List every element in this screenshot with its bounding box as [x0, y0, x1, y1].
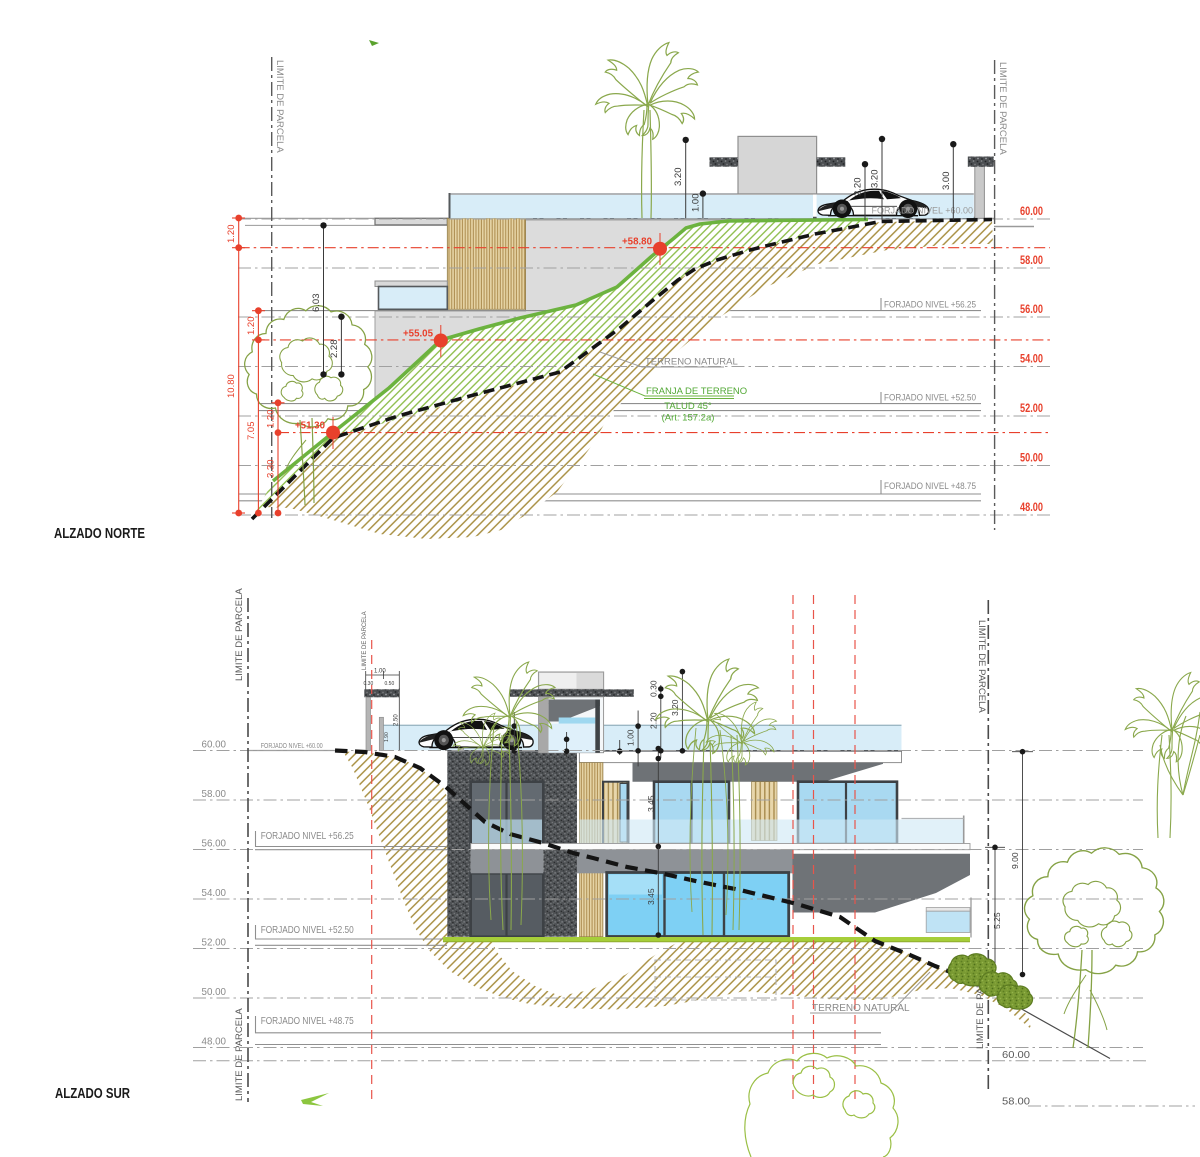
svg-text:58.00: 58.00: [1020, 255, 1043, 267]
svg-text:TERRENO NATURAL: TERRENO NATURAL: [812, 1003, 910, 1014]
svg-text:2.20: 2.20: [853, 178, 864, 197]
svg-text:FORJADO NIVEL +48.75: FORJADO NIVEL +48.75: [884, 481, 976, 491]
svg-text:0.50: 0.50: [385, 681, 395, 687]
svg-text:TERRENO NATURAL: TERRENO NATURAL: [645, 357, 738, 368]
svg-text:1.00: 1.00: [691, 194, 702, 213]
svg-text:54.00: 54.00: [202, 887, 227, 899]
svg-text:60.00: 60.00: [1020, 206, 1043, 218]
svg-text:FORJADO NIVEL +60.00: FORJADO NIVEL +60.00: [872, 206, 973, 216]
svg-text:9.00: 9.00: [1010, 852, 1020, 869]
svg-text:0.30: 0.30: [648, 680, 658, 697]
svg-text:+58.80: +58.80: [622, 236, 652, 248]
svg-text:LIMITE DE PARCELA: LIMITE DE PARCELA: [362, 611, 368, 670]
svg-text:56.00: 56.00: [1020, 304, 1043, 316]
svg-text:58.00: 58.00: [1002, 1096, 1030, 1108]
svg-text:58.00: 58.00: [202, 788, 227, 800]
svg-text:3.30: 3.30: [266, 460, 277, 479]
svg-text:1.20: 1.20: [266, 410, 277, 429]
svg-text:ALZADO SUR: ALZADO SUR: [55, 1086, 130, 1102]
svg-text:60.00: 60.00: [1002, 1049, 1030, 1061]
svg-text:48.00: 48.00: [202, 1036, 227, 1048]
svg-text:FORJADO NIVEL +60.00: FORJADO NIVEL +60.00: [261, 741, 323, 750]
svg-text:7.05: 7.05: [246, 422, 257, 441]
svg-text:3.20: 3.20: [670, 699, 680, 716]
svg-text:1.20: 1.20: [226, 225, 237, 244]
svg-text:3.20: 3.20: [673, 168, 684, 187]
svg-text:LIMITE DE PARCELA: LIMITE DE PARCELA: [234, 1008, 245, 1101]
svg-text:60.00: 60.00: [202, 739, 227, 751]
svg-text:2.20: 2.20: [648, 712, 658, 729]
svg-text:(Art: 157:2a): (Art: 157:2a): [662, 413, 715, 424]
svg-text:10.80: 10.80: [226, 374, 237, 398]
svg-text:LIMITE DE PARCELA: LIMITE DE PARCELA: [234, 588, 245, 681]
svg-text:ALZADO NORTE: ALZADO NORTE: [54, 526, 145, 542]
svg-text:FORJADO NIVEL +56.25: FORJADO NIVEL +56.25: [884, 300, 976, 310]
svg-text:50.00: 50.00: [1020, 453, 1043, 465]
svg-text:54.00: 54.00: [1020, 354, 1043, 366]
svg-text:FORJADO NIVEL +52.50: FORJADO NIVEL +52.50: [884, 393, 976, 403]
svg-text:52.00: 52.00: [202, 937, 227, 949]
svg-text:48.00: 48.00: [1020, 502, 1043, 514]
svg-text:6.03: 6.03: [311, 294, 322, 313]
svg-text:52.00: 52.00: [1020, 403, 1043, 415]
svg-text:3.00: 3.00: [941, 172, 952, 191]
svg-text:5.25: 5.25: [992, 912, 1002, 929]
svg-text:56.00: 56.00: [202, 838, 227, 850]
svg-text:3.20: 3.20: [870, 170, 881, 189]
svg-text:FORJADO NIVEL +48.75: FORJADO NIVEL +48.75: [261, 1015, 354, 1027]
svg-text:1.90: 1.90: [384, 732, 390, 742]
svg-text:2.50: 2.50: [394, 714, 400, 726]
svg-text:1.00: 1.00: [374, 669, 386, 675]
svg-text:FORJADO NIVEL +56.25: FORJADO NIVEL +56.25: [261, 830, 354, 842]
svg-text:FORJADO NIVEL +52.50: FORJADO NIVEL +52.50: [261, 924, 354, 936]
svg-text:FRANJA DE TERRENO: FRANJA DE TERRENO: [646, 386, 747, 397]
svg-text:LIMITE DE PARCELA: LIMITE DE PARCELA: [274, 60, 285, 153]
svg-text:1.20: 1.20: [246, 317, 257, 336]
svg-text:LIMITE DE PARCELA: LIMITE DE PARCELA: [976, 620, 987, 713]
svg-text:50.00: 50.00: [202, 986, 227, 998]
svg-text:3.45: 3.45: [646, 888, 656, 905]
svg-text:3.45: 3.45: [646, 795, 656, 812]
svg-text:+51.30: +51.30: [295, 420, 325, 432]
svg-text:LIMITE DE PARCELA: LIMITE DE PARCELA: [997, 62, 1008, 155]
svg-text:1.00: 1.00: [626, 729, 636, 746]
svg-text:TALUD 45°: TALUD 45°: [664, 401, 712, 412]
svg-text:2.28: 2.28: [329, 340, 340, 359]
svg-text:+55.05: +55.05: [403, 328, 433, 340]
